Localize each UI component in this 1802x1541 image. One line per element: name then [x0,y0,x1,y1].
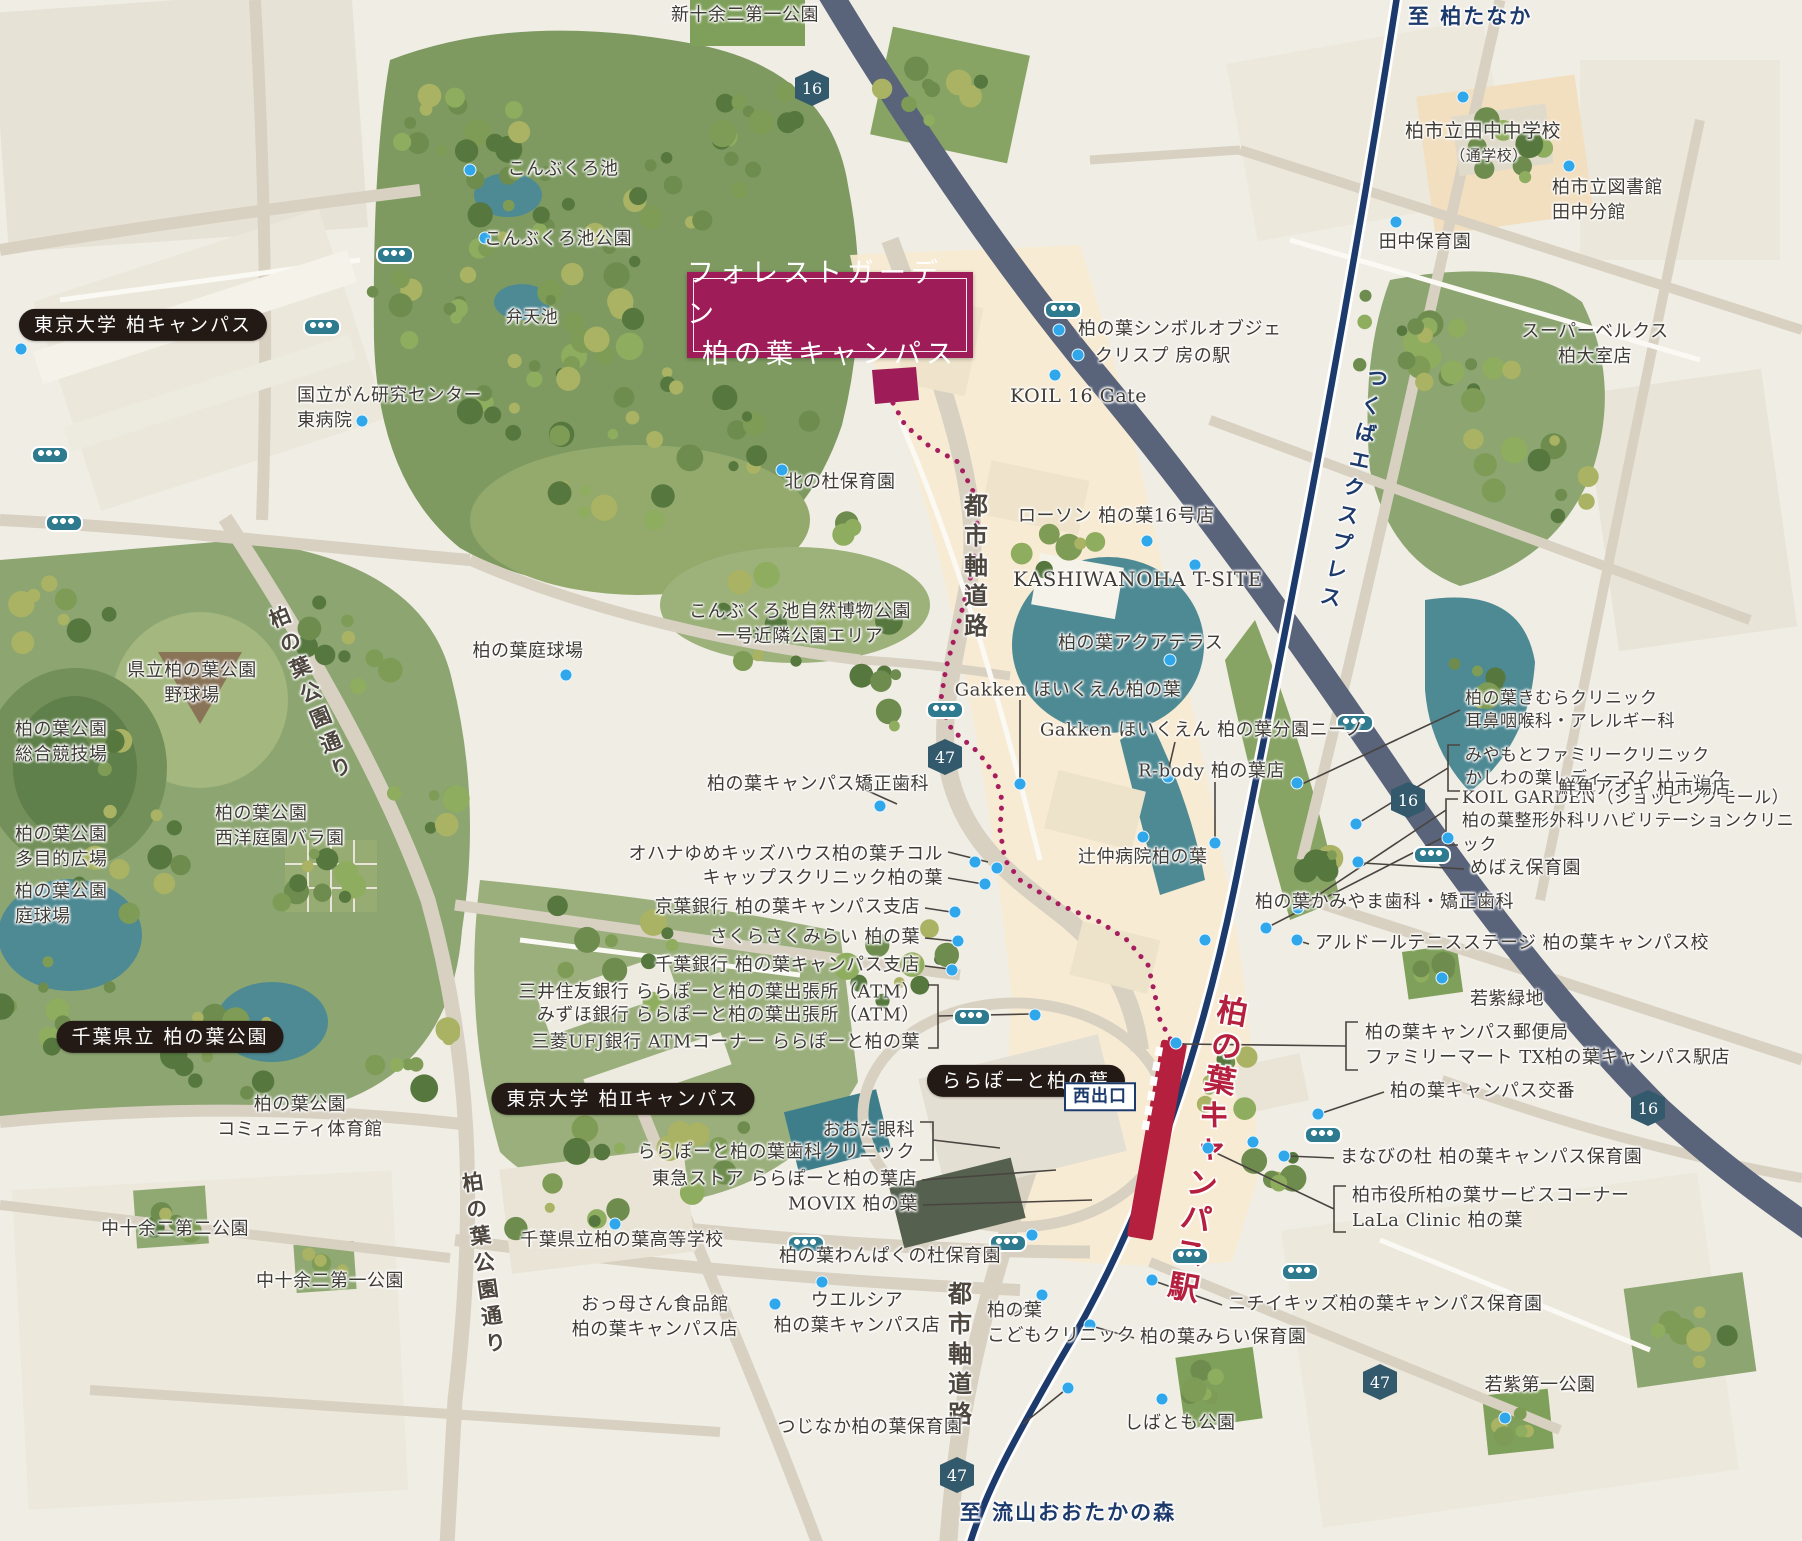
poi-dot [1170,1037,1183,1050]
map-label: 柏市立図書館 田中分館 [1552,176,1663,226]
poi-dot [464,164,477,177]
poi-dot [1049,369,1062,382]
map-label: Gakken ほいくえん 柏の葉分園ニーノ [1040,719,1364,744]
map-label: さくらさくみらい 柏の葉 [710,926,920,951]
poi-dot [1278,1150,1291,1163]
map-label: オハナゆめキッズハウス柏の葉チコル [629,843,944,868]
map-label: 鮮魚アオキ 柏市場店 [1558,777,1731,802]
poi-dot [1209,837,1222,850]
poi-dot [1260,922,1273,935]
direction-label: 至 流山おおたかの森 [960,1499,1176,1528]
route-shield-16: 16 [1391,782,1425,818]
poi-dot [991,862,1004,875]
route-shield-16: 16 [795,70,829,106]
map-label: MOVIX 柏の葉 [788,1193,918,1218]
poi-dot [1072,349,1085,362]
poi-dot [979,878,992,891]
poi-dot [969,856,982,869]
map-label: 柏の葉キャンパス郵便局 ファミリーマート TX柏の葉キャンパス駅店 [1365,1021,1730,1071]
map-label: 柏の葉庭球場 [473,640,584,665]
map-label: 柏の葉わんぱくの杜保育園 [779,1245,1001,1270]
poi-dot [1499,1412,1512,1425]
route-shield-47: 47 [1363,1364,1397,1400]
map-label: こんぶくろ池自然博物公園 一号近隣公園エリア [689,600,911,650]
map-label: アルドールテニスステージ 柏の葉キャンパス校 [1315,932,1709,957]
bus-stop-icon [1413,846,1451,864]
map-label: 柏の葉公園 多目的広場 [15,823,108,873]
bus-stop-icon [1281,1263,1319,1281]
poi-dot [1563,160,1576,173]
bus-stop-icon [926,701,964,719]
poi-dot [1053,324,1066,337]
poi-dot [1026,1229,1039,1242]
poi-dot [816,1276,829,1289]
map-label: 京葉銀行 柏の葉キャンパス支店 [655,896,920,921]
poi-dot [1457,91,1470,104]
poi-dot [1141,535,1154,548]
bus-stop-icon [376,246,414,264]
map-label: しばとも公園 [1125,1412,1236,1437]
poi-dot [1291,777,1304,790]
map-label: 千葉銀行 柏の葉キャンパス支店 [655,954,920,979]
route-shield-47: 47 [940,1457,974,1493]
poi-dot [1137,831,1150,844]
map-label: Gakken ほいくえん柏の葉 [955,679,1181,704]
place-pill: 東京大学 柏キャンパス [19,309,267,341]
poi-dot [1014,778,1027,791]
map-label: 柏の葉アクアテラス [1058,632,1223,657]
route-shield-47: 47 [928,739,962,775]
bus-stop-icon [1304,1126,1342,1144]
road-name-label: 都市軸道路 [957,493,990,643]
map-label: 若紫第一公園 [1485,1374,1596,1399]
poi-dot [1312,1108,1325,1121]
poi-dot [1352,856,1365,869]
map-label: R-body 柏の葉店 [1138,760,1285,785]
road-name-label: 柏の葉公園通り [261,602,359,788]
west-exit-badge: 西出口 [1064,1082,1136,1111]
place-pill: 東京大学 柏Ⅱキャンパス [492,1083,755,1115]
title-line2: 柏の葉キャンパス [702,335,958,376]
bus-stop-icon [303,318,341,336]
poi-dot [949,906,962,919]
poi-dot [1202,1142,1215,1155]
poi-dot [1350,818,1363,831]
map-label: 弁天池 [506,306,559,329]
map-label: 東急ストア ららぽーと柏の葉店 [652,1168,917,1193]
poi-dot [1156,1393,1169,1406]
map-label: つじなか柏の葉保育園 [778,1416,963,1441]
map-label: 柏の葉 こどもクリニック [987,1299,1135,1349]
map-label: 県立柏の葉公園 野球場 [127,659,257,709]
bus-stop-icon [45,514,83,532]
map-label: ローソン 柏の葉16号店 [1018,505,1215,530]
map-label: 柏の葉公園 総合競技場 [15,718,108,768]
map-label: 柏の葉きむらクリニック 耳鼻咽喉科・アレルギー科 [1465,688,1675,735]
poi-dot [1436,972,1449,985]
poi-dot [15,343,28,356]
bus-stop-icon [31,446,69,464]
poi-dot [1291,934,1304,947]
map-label: （通学校） [1450,146,1528,167]
map-label: 田中保育園 [1379,231,1472,256]
poi-dot [1146,1274,1159,1287]
map-label: 柏の葉公園 庭球場 [15,880,108,930]
poi-dot [1029,1009,1042,1022]
map-label: 柏の葉かみやま歯科・矯正歯科 [1255,891,1514,916]
bus-stop-icon [953,1008,991,1026]
map-label: 北の杜保育園 [785,471,896,496]
poi-dot [560,669,573,682]
bus-stop-icon [1044,301,1082,319]
title-line1: フォレストガーデン [687,254,973,335]
map-label: 柏市役所柏の葉サービスコーナー LaLa Clinic 柏の葉 [1352,1184,1630,1234]
route-shield-16: 16 [1631,1090,1665,1126]
map-label: 柏の葉キャンパス交番 [1390,1080,1575,1105]
direction-label: 至 柏たなか [1408,3,1532,32]
map-label: 辻仲病院柏の葉 [1078,846,1208,871]
road-name-label: 柏の葉公園通り [456,1169,511,1360]
map-label: 国立がん研究センター 東病院 [297,384,482,434]
map-label: 柏の葉公園 西洋庭園バラ園 [215,802,345,852]
poi-dot [1390,216,1403,229]
map-label: ニチイキッズ柏の葉キャンパス保育園 [1228,1293,1543,1318]
label-overlay: フォレストガーデン 柏の葉キャンパス 柏の葉キャンパス駅 16471616474… [0,0,1802,1541]
map-label: 中十余二第一公園 [256,1270,404,1295]
map-label: おっ母さん食品館 柏の葉キャンパス店 [572,1293,739,1343]
map-label: 新十余二第一公園 [671,4,819,29]
map-label: 柏の葉シンボルオブジェ [1078,318,1282,343]
map-label: まなびの杜 柏の葉キャンパス保育園 [1340,1146,1642,1171]
poi-dot [946,964,959,977]
poi-dot [1062,1382,1075,1395]
poi-dot [1247,1136,1260,1149]
map-label: みずほ銀行 ららぽーと柏の葉出張所（ATM） [537,1004,920,1029]
highlight-title-box: フォレストガーデン 柏の葉キャンパス [687,272,973,358]
map-label: 若紫緑地 [1470,988,1544,1013]
map-label: 中十余二第二公園 [101,1218,249,1243]
poi-dot [1199,934,1212,947]
map-label: ららぽーと柏の葉歯科クリニック [638,1141,916,1166]
railline-name-label: つくばエクスプレス [1312,364,1393,617]
map-label: スーパーベルクス 柏大室店 [1521,320,1668,370]
map-label: 三井住友銀行 ららぽーと柏の葉出張所（ATM） [518,981,920,1006]
map-label: キャップスクリニック柏の葉 [703,867,944,892]
map-label: 柏の葉みらい保育園 [1140,1326,1307,1351]
poi-dot [874,800,887,813]
map-label: 柏の葉キャンパス矯正歯科 [707,773,929,798]
map-label: 千葉県立柏の葉高等学校 [520,1229,724,1254]
map-label: 柏市立田中中学校 [1405,118,1561,144]
poi-dot [952,935,965,948]
bus-stop-icon [1171,1247,1209,1265]
map-label: めばえ保育園 [1470,857,1581,882]
map-label: ウエルシア 柏の葉キャンパス店 [774,1289,941,1339]
map-label: こんぶくろ池 [508,158,619,183]
place-pill: 千葉県立 柏の葉公園 [56,1021,283,1053]
poi-dot [1442,832,1455,845]
kashiwanoha-area-map: フォレストガーデン 柏の葉キャンパス 柏の葉キャンパス駅 16471616474… [0,0,1802,1541]
map-label: KASHIWANOHA T-SITE [1013,566,1263,594]
map-label: クリスプ 房の駅 [1095,345,1231,370]
road-name-label: 都市軸道路 [941,1281,974,1431]
map-label: KOIL 16 Gate [1010,383,1147,409]
map-label: こんぶくろ池公園 [484,228,632,253]
map-label: 三菱UFJ銀行 ATMコーナー ららぽーと柏の葉 [531,1031,920,1056]
map-label: 柏の葉公園 コミュニティ体育館 [217,1093,382,1143]
